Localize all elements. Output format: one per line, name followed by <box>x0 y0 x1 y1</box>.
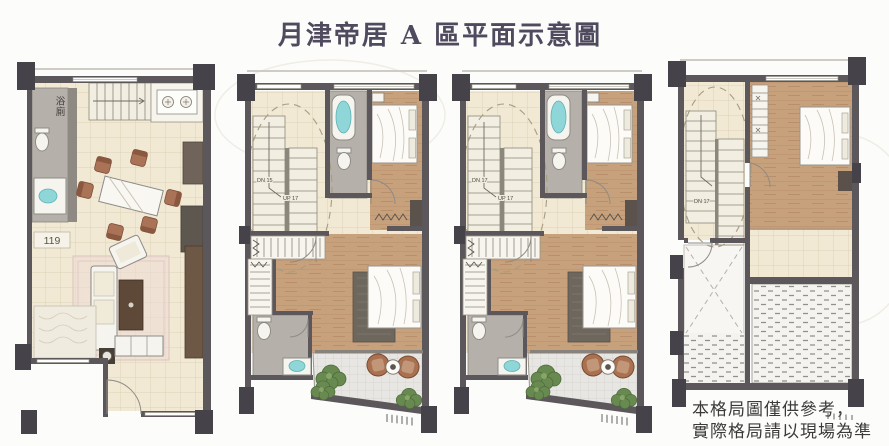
tv-bench <box>115 336 163 356</box>
tall-cabinet <box>181 206 203 252</box>
wardrobe <box>752 85 768 157</box>
floor-plan-3f: DN 17 UP 17 <box>452 62 652 435</box>
unit-number: 119 <box>44 235 61 247</box>
disclaimer-note: 本格局圖僅供參考， 實際格局請以現場為準 <box>692 399 872 443</box>
storage-bench <box>34 306 96 358</box>
page-title: 月津帝居 A 區平面示意圖 <box>255 15 625 52</box>
tv-cabinet <box>185 246 203 358</box>
terrace-right <box>752 284 852 383</box>
floor-plan-1f: 浴廁 119 UP <box>15 62 222 434</box>
bathroom-label: 浴廁 <box>54 96 66 117</box>
stair-up-label: UP 17 <box>283 196 298 202</box>
disclaimer-line-2: 實際格局請以現場為準 <box>692 421 872 443</box>
dresser <box>838 171 854 191</box>
floor-plan-4f: DN 17 <box>668 55 887 420</box>
stair-up-label: UP 17 <box>498 196 513 202</box>
stair-down-label: DN 17 <box>472 178 488 184</box>
bathroom: 浴廁 <box>32 88 77 222</box>
disclaimer-line-1: 本格局圖僅供參考， <box>692 399 872 421</box>
scanned-floorplan-page: 月津帝居 A 區平面示意圖 浴廁 119 UP <box>0 0 889 446</box>
stair-down-label: DN 17 <box>694 199 710 205</box>
stair-down-label: DN 15 <box>257 178 273 184</box>
floor-plan-2f: DN 15 UP 17 <box>237 62 437 435</box>
toilet-icon <box>35 128 49 133</box>
refrigerator <box>183 142 203 184</box>
